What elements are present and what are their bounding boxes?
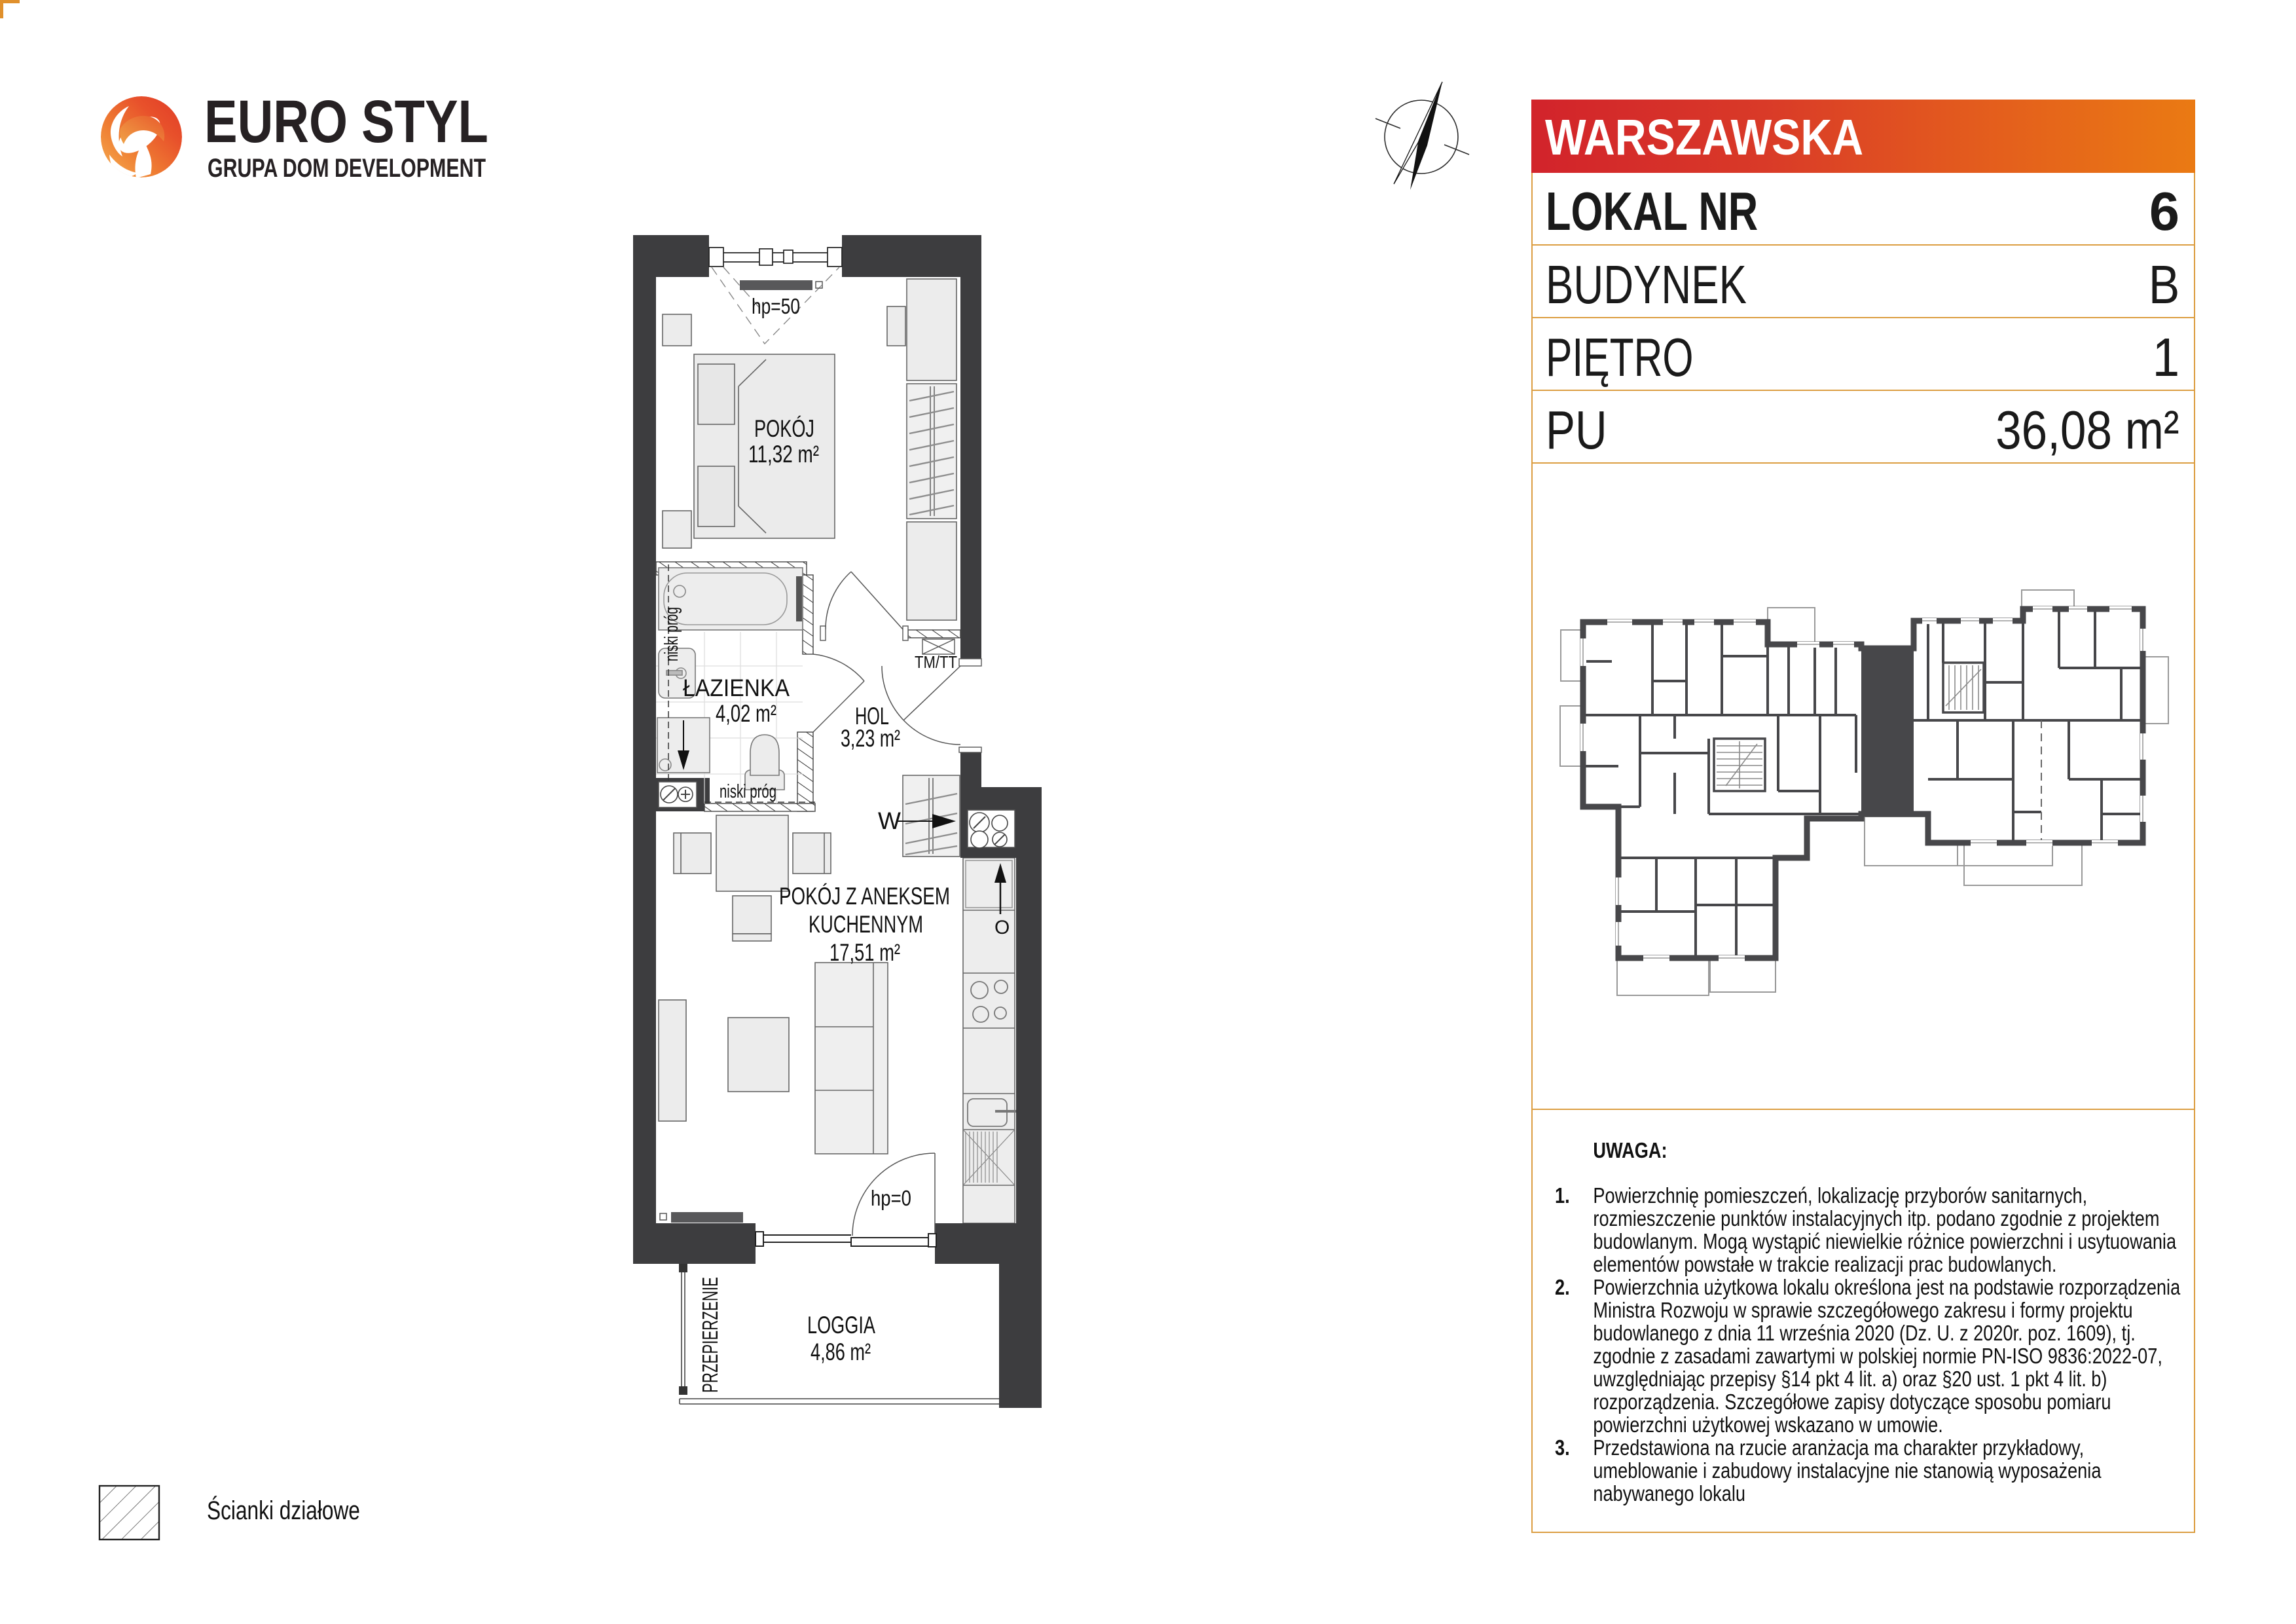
svg-text:POKÓJ: POKÓJ bbox=[754, 415, 814, 442]
svg-text:TM/TT: TM/TT bbox=[915, 652, 957, 672]
svg-text:POKÓJ Z ANEKSEM: POKÓJ Z ANEKSEM bbox=[779, 883, 950, 910]
svg-text:3,23 m²: 3,23 m² bbox=[841, 725, 900, 752]
svg-text:ŁAZIENKA: ŁAZIENKA bbox=[683, 674, 790, 701]
svg-text:O: O bbox=[994, 917, 1010, 938]
svg-text:KUCHENNYM: KUCHENNYM bbox=[809, 911, 923, 938]
svg-text:PRZEPIERZENIE: PRZEPIERZENIE bbox=[698, 1277, 722, 1393]
svg-text:hp=50: hp=50 bbox=[752, 294, 800, 318]
svg-text:17,51 m²: 17,51 m² bbox=[829, 939, 900, 966]
svg-text:W: W bbox=[878, 807, 901, 834]
svg-text:11,32 m²: 11,32 m² bbox=[748, 441, 819, 468]
svg-text:LOGGIA: LOGGIA bbox=[807, 1312, 875, 1338]
svg-text:niski próg: niski próg bbox=[720, 781, 776, 802]
svg-text:4,02 m²: 4,02 m² bbox=[716, 700, 776, 727]
svg-text:4,86 m²: 4,86 m² bbox=[811, 1338, 871, 1365]
svg-text:hp=0: hp=0 bbox=[871, 1186, 911, 1210]
svg-text:niski próg: niski próg bbox=[661, 607, 682, 661]
